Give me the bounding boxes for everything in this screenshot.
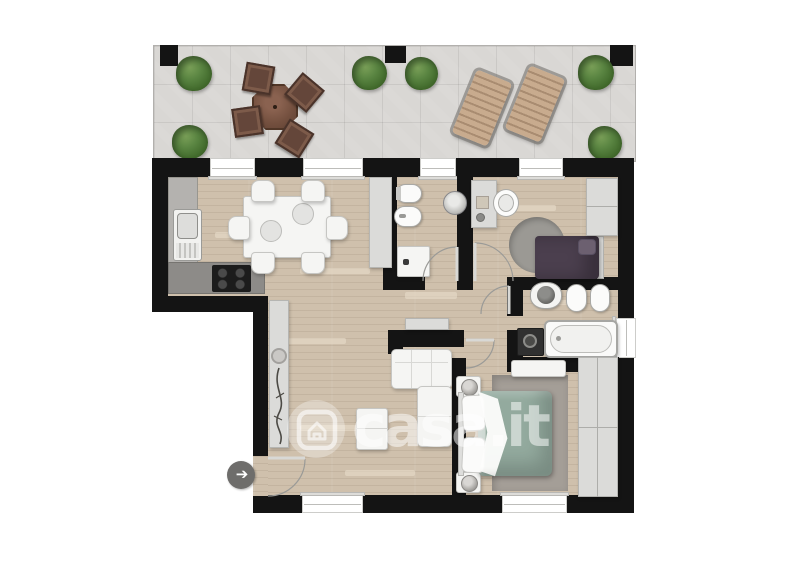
patio-chair [242, 62, 276, 96]
floor-plank-streak [405, 292, 457, 299]
wall-step [152, 296, 266, 312]
bathtub-drain [556, 336, 561, 341]
patio-chair [231, 105, 264, 138]
master-dresser [511, 360, 566, 377]
decor-plate [271, 348, 287, 364]
washing-machine-small-bathroom [397, 246, 430, 277]
washing-machine-door-ring [523, 334, 537, 348]
wall-left-upper [152, 158, 168, 312]
window-small-bathroom [420, 158, 456, 177]
exterior-notch [140, 312, 253, 530]
dining-chair [301, 252, 325, 274]
watermark-text: casa.it [352, 392, 548, 460]
kitchen-tall-cabinet [369, 177, 392, 268]
entrance-door-opening [253, 456, 268, 496]
dining-table-plate [292, 203, 314, 225]
dining-chair [228, 216, 250, 240]
window-single-bedroom [519, 158, 563, 177]
entrance-arrow-icon: ➔ [232, 464, 252, 484]
window-sill [500, 492, 569, 496]
window-sill [208, 176, 257, 180]
kitchen-sink-basin [177, 213, 198, 239]
plant-bush [176, 56, 212, 91]
dining-table [243, 196, 331, 258]
sofa-cushion-line [395, 362, 448, 363]
plant-bush [588, 126, 622, 160]
terrace-pillar [160, 45, 178, 66]
single-bed-pillow [578, 239, 596, 255]
small-bathroom-washbasin [443, 191, 467, 215]
bidet-tap [399, 214, 406, 218]
window-living-room [302, 495, 363, 513]
window-kitchen-2 [303, 158, 363, 177]
plant-bush [352, 56, 387, 90]
wall-hall-sofa [388, 330, 464, 347]
desk-items [476, 196, 489, 209]
corner-sofa-back [391, 349, 452, 389]
dining-table-plate [260, 220, 282, 242]
washing-machine-door-dot [403, 259, 409, 265]
single-bedroom-wardrobe [586, 178, 618, 236]
watermark-circle [287, 400, 345, 458]
sideboard [269, 300, 289, 448]
wall-small-bathroom-south [383, 276, 425, 290]
plant-bush [405, 57, 438, 90]
wardrobe-seam [586, 206, 618, 207]
floorplan-image: ➔ casa.it [0, 0, 800, 566]
dining-chair [251, 180, 275, 202]
patio-table-center-dot [273, 105, 277, 109]
window-sill [418, 176, 458, 180]
window-main-bathroom [616, 318, 636, 358]
plant-bush [578, 55, 614, 90]
hall-console [405, 318, 449, 330]
window-kitchen-1 [210, 158, 255, 177]
desk-chair [494, 190, 518, 216]
wall-main-bathroom-west-a [507, 290, 523, 316]
terrace-pillar [385, 46, 406, 63]
main-bathroom-bidet [590, 284, 610, 312]
window-master-bedroom [502, 495, 567, 513]
terrace-pillar [610, 45, 633, 66]
toilet-tank [396, 187, 401, 200]
cooktop [212, 265, 251, 292]
dining-chair [326, 216, 348, 240]
dining-chair [251, 252, 275, 274]
plant-bush [172, 125, 208, 159]
main-bathroom-toilet [566, 284, 587, 312]
desk-lamp-dot [476, 213, 485, 222]
window-sill [300, 492, 365, 496]
floor-plank-streak [282, 338, 346, 344]
window-sill [517, 176, 565, 180]
kitchen-sink-drainer [176, 243, 199, 258]
floor-plank-streak [345, 470, 415, 476]
wardrobe-seam [578, 427, 618, 428]
main-bathroom-basin-bowl [537, 286, 555, 304]
nightstand-lamp [461, 475, 478, 492]
dining-chair [301, 180, 325, 202]
